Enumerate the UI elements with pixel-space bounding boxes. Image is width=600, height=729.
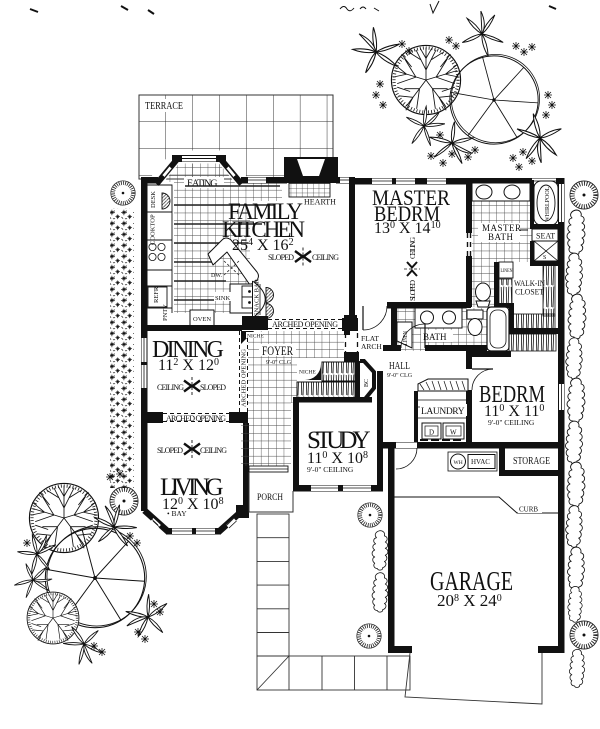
svg-text:CEILING: CEILING bbox=[408, 236, 417, 259]
svg-text:BATH: BATH bbox=[488, 232, 514, 242]
svg-text:9'-0" CEILING: 9'-0" CEILING bbox=[488, 418, 535, 427]
svg-text:HVAC: HVAC bbox=[471, 458, 490, 466]
svg-text:BC: BC bbox=[364, 379, 370, 387]
svg-text:D: D bbox=[429, 429, 434, 437]
svg-text:S: S bbox=[543, 255, 546, 261]
svg-text:BATH: BATH bbox=[423, 332, 447, 342]
svg-text:LINEN: LINEN bbox=[403, 330, 409, 345]
svg-text:SLOPED: SLOPED bbox=[268, 253, 294, 262]
svg-text:HALL: HALL bbox=[389, 361, 410, 372]
svg-text:REFR: REFR bbox=[153, 286, 160, 303]
svg-text:SINK: SINK bbox=[215, 295, 230, 302]
svg-text:112 X 120: 112 X 120 bbox=[158, 357, 219, 374]
svg-text:9'-0" CEILING: 9'-0" CEILING bbox=[307, 465, 354, 474]
svg-text:PORCH: PORCH bbox=[257, 492, 283, 502]
svg-text:TERRACE: TERRACE bbox=[145, 101, 183, 112]
svg-text:EATING: EATING bbox=[187, 179, 218, 190]
svg-text:WH: WH bbox=[454, 460, 463, 466]
svg-text:OVEN: OVEN bbox=[193, 316, 211, 323]
svg-text:LAUNDRY: LAUNDRY bbox=[421, 407, 465, 417]
svg-text:• BAY: • BAY bbox=[167, 509, 187, 518]
svg-text:NICHE: NICHE bbox=[247, 334, 264, 340]
svg-text:STORAGE: STORAGE bbox=[513, 456, 550, 467]
svg-text:PNTY: PNTY bbox=[162, 304, 169, 321]
svg-text:CURB: CURB bbox=[519, 506, 538, 514]
svg-text:CEILING: CEILING bbox=[200, 446, 227, 455]
svg-text:9'-0" CLG: 9'-0" CLG bbox=[266, 360, 292, 366]
svg-text:WHIRLPOOL: WHIRLPOOL bbox=[545, 186, 551, 222]
svg-text:HEARTH: HEARTH bbox=[304, 198, 336, 207]
svg-text:CLOSET: CLOSET bbox=[515, 287, 545, 297]
svg-text:SEAT: SEAT bbox=[536, 232, 555, 241]
svg-text:SNACK BAR: SNACK BAR bbox=[254, 278, 261, 316]
svg-text:254 X 162: 254 X 162 bbox=[232, 237, 294, 254]
svg-text:CEILING: CEILING bbox=[157, 383, 184, 392]
svg-text:ARCHED OPENING: ARCHED OPENING bbox=[272, 320, 338, 329]
svg-text:SLOPED: SLOPED bbox=[157, 446, 183, 455]
svg-text:SLOPED: SLOPED bbox=[408, 279, 417, 301]
svg-text:W: W bbox=[450, 429, 457, 437]
svg-text:ARCH: ARCH bbox=[361, 342, 382, 351]
svg-text:SLOPED: SLOPED bbox=[200, 383, 226, 392]
svg-text:ARCHED OPENING: ARCHED OPENING bbox=[241, 349, 248, 407]
svg-text:208 X 240: 208 X 240 bbox=[437, 591, 502, 610]
svg-text:LINEN: LINEN bbox=[501, 268, 513, 274]
svg-text:DESK: DESK bbox=[150, 191, 157, 208]
svg-text:COOKTOP: COOKTOP bbox=[150, 214, 157, 245]
svg-text:DW.: DW. bbox=[211, 273, 222, 279]
svg-text:FOYER: FOYER bbox=[262, 344, 293, 358]
svg-text:NICHE: NICHE bbox=[299, 370, 316, 376]
svg-text:9'-0" CLG: 9'-0" CLG bbox=[387, 373, 413, 379]
svg-text:ARCHED OPENING: ARCHED OPENING bbox=[166, 414, 226, 423]
svg-text:CEILING: CEILING bbox=[312, 253, 339, 262]
